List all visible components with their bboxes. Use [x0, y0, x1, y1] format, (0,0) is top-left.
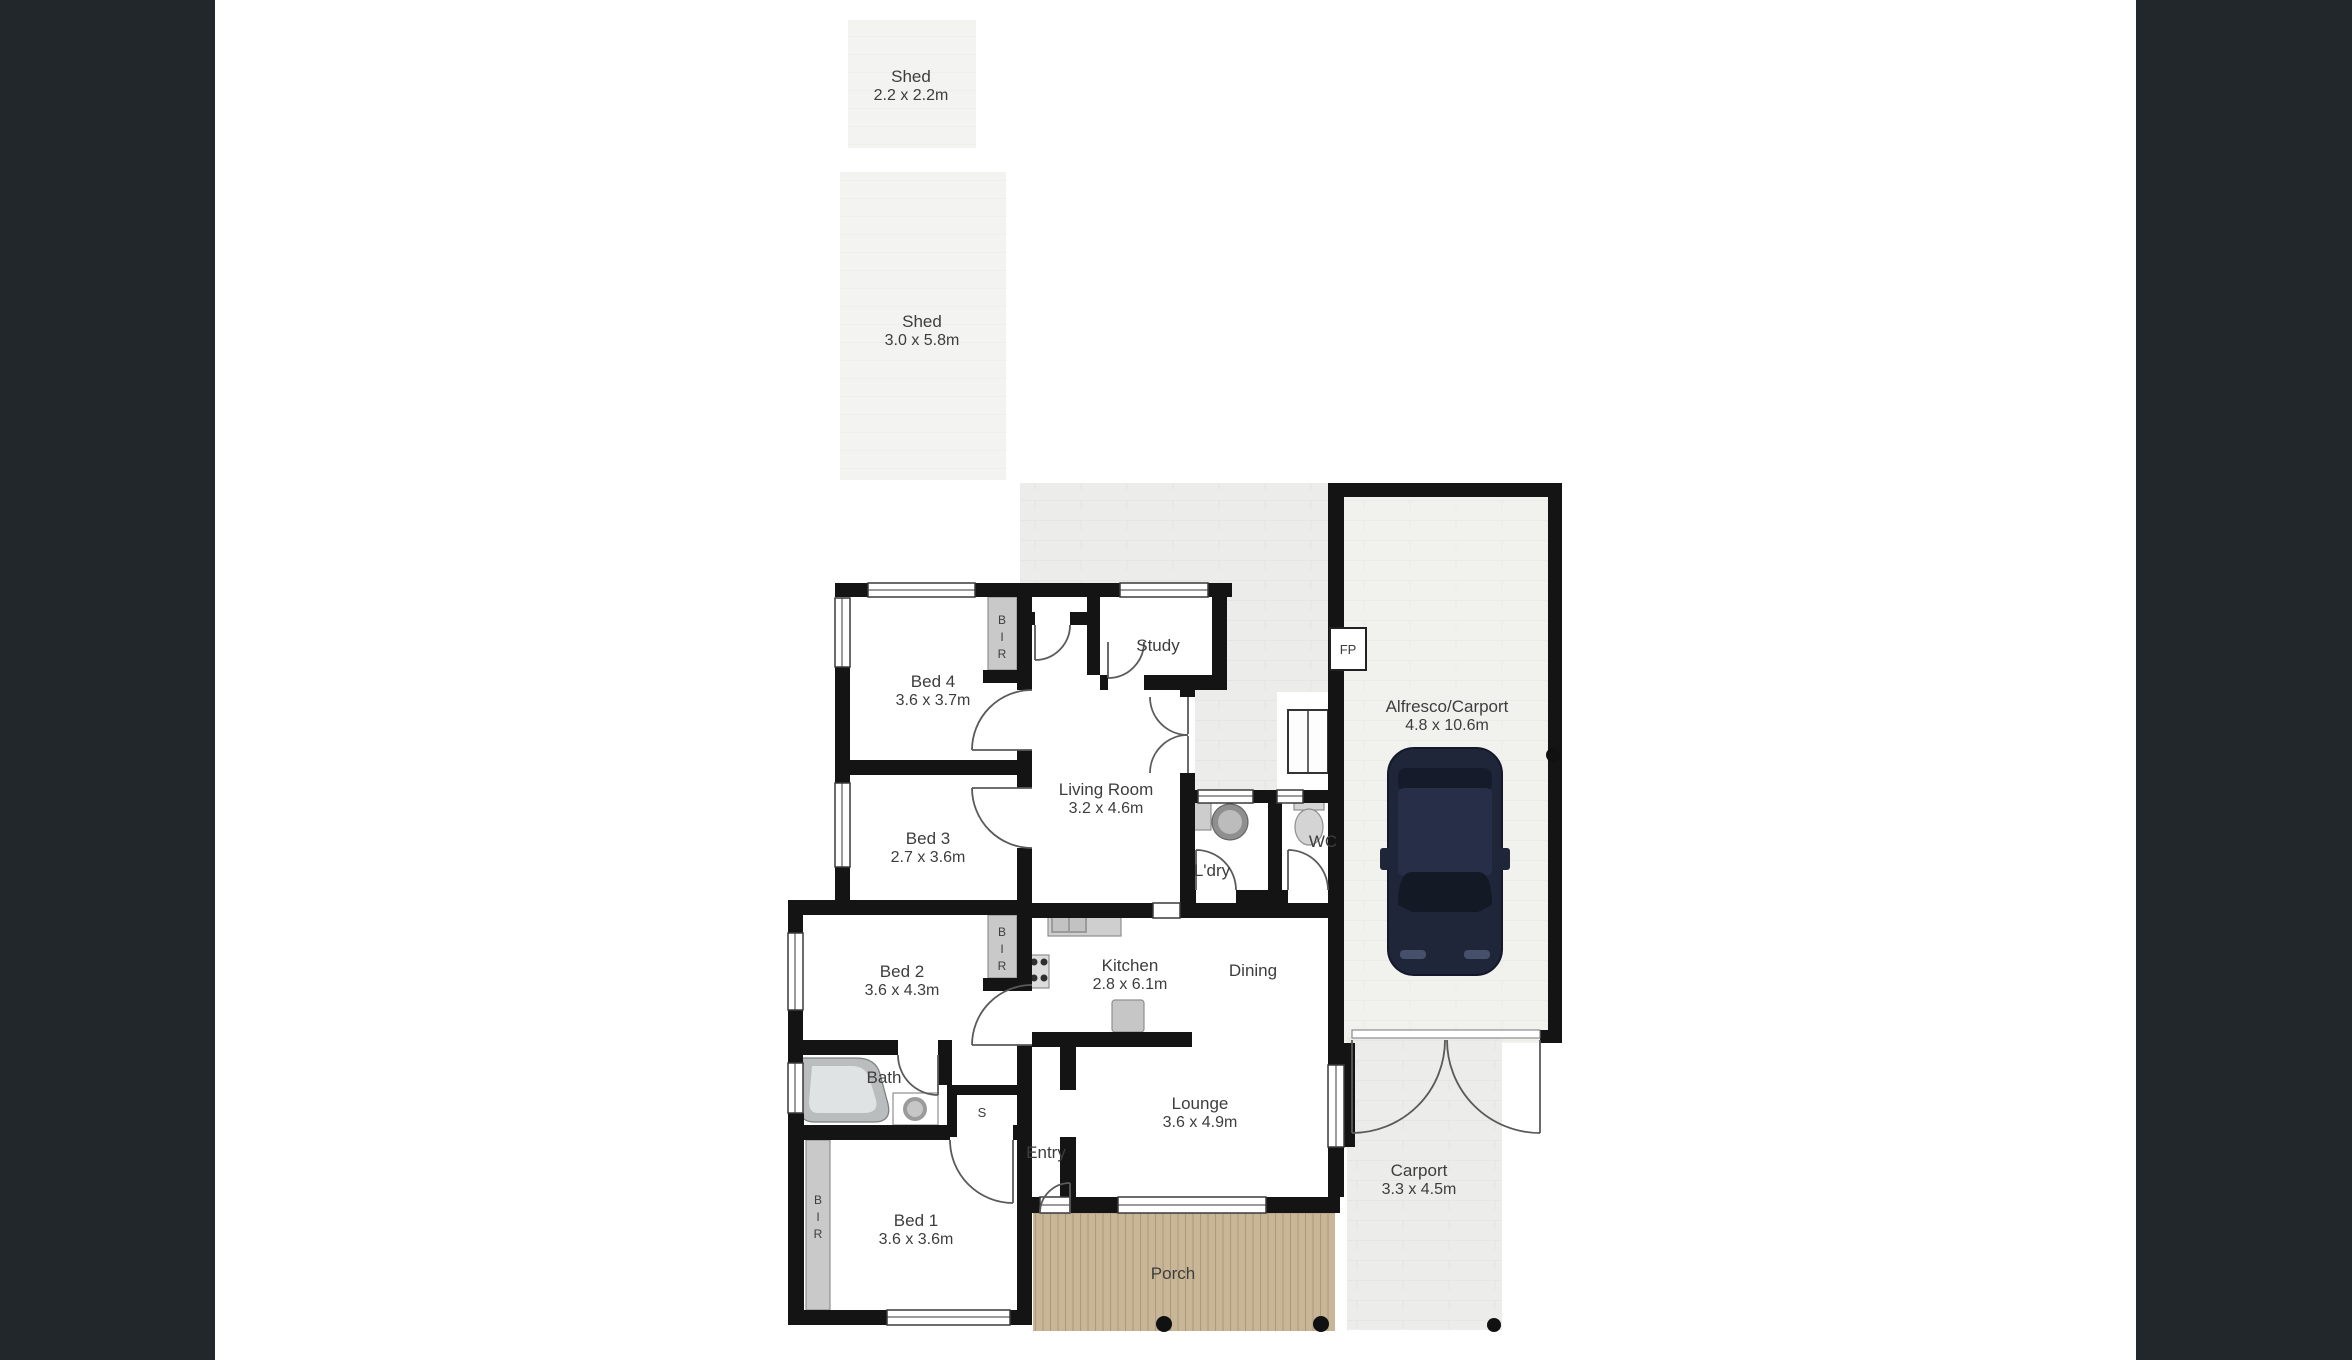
bed1-bir-letter: R	[814, 1227, 823, 1241]
lounge-label: Lounge	[1172, 1094, 1229, 1113]
car-mirror-left	[1380, 848, 1390, 870]
shed-small: Shed 2.2 x 2.2m	[848, 20, 976, 148]
car	[1380, 748, 1510, 975]
bed4-bir-letter: R	[998, 647, 1007, 661]
floorplan-canvas: Shed 2.2 x 2.2m Shed 3.0 x 5.8m	[0, 0, 2352, 1360]
bed4-bir-letter: I	[1000, 630, 1003, 644]
fireplace: FP	[1330, 628, 1366, 670]
bed2-bir-letter: R	[998, 959, 1007, 973]
vanity-basin-bowl	[907, 1101, 923, 1117]
shed-large-dims: 3.0 x 5.8m	[885, 332, 960, 349]
carport-gate-header	[1352, 1030, 1540, 1038]
laundry-label: L'dry	[1194, 861, 1231, 880]
carport-label: Carport	[1391, 1161, 1448, 1180]
car-windshield	[1398, 872, 1492, 912]
car-roof	[1398, 788, 1492, 876]
kitchen-dims: 2.8 x 6.1m	[1093, 976, 1168, 993]
bed1-bir-robe	[806, 1140, 830, 1310]
bed3-dims: 2.7 x 3.6m	[891, 849, 966, 866]
carport-dims: 3.3 x 4.5m	[1382, 1181, 1457, 1198]
living-label: Living Room	[1059, 780, 1154, 799]
car-headlight-left	[1400, 950, 1426, 959]
shed-large: Shed 3.0 x 5.8m	[840, 172, 1006, 480]
car-headlight-right	[1464, 950, 1490, 959]
lounge-dims: 3.6 x 4.9m	[1163, 1114, 1238, 1131]
fireplace-label: FP	[1340, 642, 1357, 657]
car-mirror-right	[1500, 848, 1510, 870]
porch-post	[1313, 1316, 1329, 1332]
alfresco-post	[1546, 748, 1560, 762]
bed1-dims: 3.6 x 3.6m	[879, 1231, 954, 1248]
stove-burner	[1041, 975, 1048, 982]
left-sidebar	[0, 0, 215, 1360]
bed2-bir-letter: B	[998, 925, 1006, 939]
porch-post	[1156, 1316, 1172, 1332]
shower-label: S	[978, 1105, 987, 1120]
carport-post	[1487, 1318, 1501, 1332]
entry-label: Entry	[1026, 1143, 1066, 1162]
bed3-label: Bed 3	[906, 829, 950, 848]
kitchen-island	[1112, 1000, 1144, 1032]
bed4-dims: 3.6 x 3.7m	[896, 692, 971, 709]
kitchen-label: Kitchen	[1102, 956, 1159, 975]
shed-large-label: Shed	[902, 312, 942, 331]
bed2-dims: 3.6 x 4.3m	[865, 982, 940, 999]
bed2-bir-letter: I	[1000, 942, 1003, 956]
right-sidebar	[2136, 0, 2352, 1360]
wc-label: WC	[1309, 832, 1337, 851]
living-dims: 3.2 x 4.6m	[1069, 800, 1144, 817]
dining-label: Dining	[1229, 961, 1277, 980]
bed2-label: Bed 2	[880, 962, 924, 981]
shed-small-label: Shed	[891, 67, 931, 86]
bed4-label: Bed 4	[911, 672, 955, 691]
bed1-bir-letter: I	[816, 1210, 819, 1224]
floorplan-page: Shed 2.2 x 2.2m Shed 3.0 x 5.8m	[0, 0, 2352, 1360]
porch-label: Porch	[1151, 1264, 1195, 1283]
laundry-tub-bowl	[1218, 810, 1242, 834]
bed4-bir-letter: B	[998, 613, 1006, 627]
alfresco-label: Alfresco/Carport	[1386, 697, 1509, 716]
shed-small-dims: 2.2 x 2.2m	[874, 87, 949, 104]
bath-label: Bath	[867, 1068, 902, 1087]
alfresco-dims: 4.8 x 10.6m	[1405, 717, 1489, 734]
study-label: Study	[1136, 636, 1180, 655]
bed1-bir-letter: B	[814, 1193, 822, 1207]
stove-burner	[1041, 959, 1048, 966]
back-door-panel	[1153, 903, 1180, 918]
bed1-label: Bed 1	[894, 1211, 938, 1230]
